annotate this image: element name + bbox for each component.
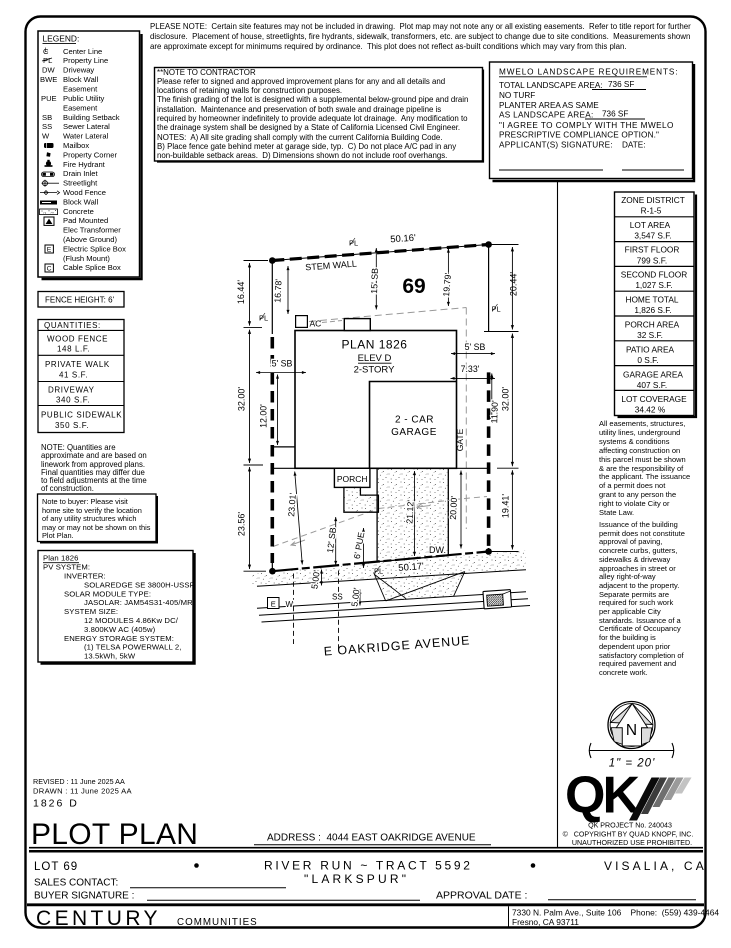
svg-text:"I AGREE TO COMPLY WITH THE MW: "I AGREE TO COMPLY WITH THE MWELO (499, 121, 674, 130)
svg-text:Block Wall: Block Wall (63, 197, 98, 206)
svg-text:PV SYSTEM:: PV SYSTEM: (43, 563, 90, 572)
svg-text:QUANTITIES:: QUANTITIES: (44, 321, 101, 330)
svg-text:ZONE DISTRICT: ZONE DISTRICT (621, 195, 685, 205)
svg-text:19.41': 19.41' (501, 494, 511, 519)
svg-text:PORCH AREA: PORCH AREA (625, 320, 680, 330)
svg-text:R-1-5: R-1-5 (641, 206, 662, 216)
svg-text:21.12': 21.12' (404, 499, 415, 524)
svg-text:NO TURF: NO TURF (499, 91, 535, 100)
svg-text:20.44': 20.44' (509, 272, 519, 297)
svg-text:Elec Transformer: Elec Transformer (63, 226, 121, 235)
svg-text:CENTURY: CENTURY (36, 907, 161, 930)
svg-text:32.00': 32.00' (501, 387, 511, 412)
svg-text:UNAUTHORIZED USE PROHIBITED.: UNAUTHORIZED USE PROHIBITED. (572, 839, 692, 847)
svg-text:"LARKSPUR": "LARKSPUR" (304, 872, 409, 886)
svg-text:MWELO LANDSCAPE REQUIREMENTS:: MWELO LANDSCAPE REQUIREMENTS: (499, 68, 678, 77)
svg-text:0 S.F.: 0 S.F. (637, 355, 658, 365)
svg-text:E OAKRIDGE AVENUE: E OAKRIDGE AVENUE (323, 633, 471, 658)
svg-text:5' SB: 5' SB (465, 342, 486, 352)
svg-text:GARAGE: GARAGE (391, 427, 437, 438)
svg-text:Plan 1826: Plan 1826 (43, 554, 79, 563)
svg-text:PATIO AREA: PATIO AREA (626, 345, 675, 355)
svg-text:23.01': 23.01' (286, 492, 298, 517)
svg-text:QK PROJECT No. 240043: QK PROJECT No. 240043 (588, 822, 672, 830)
svg-text:Easement: Easement (63, 84, 98, 93)
svg-text:LOT AREA: LOT AREA (630, 220, 671, 230)
svg-text:E: E (47, 247, 52, 254)
svg-text:1826 D: 1826 D (33, 798, 79, 810)
svg-text:FENCE HEIGHT: 6': FENCE HEIGHT: 6' (45, 296, 115, 305)
svg-text:Concrete: Concrete (63, 207, 94, 216)
svg-text:5' SB: 5' SB (272, 359, 293, 369)
svg-text:20.00': 20.00' (448, 495, 459, 520)
svg-text:LOT COVERAGE: LOT COVERAGE (621, 394, 687, 404)
svg-text:PLOT PLAN: PLOT PLAN (31, 818, 198, 851)
svg-text:1,826 S.F.: 1,826 S.F. (634, 305, 671, 315)
svg-text:COMMUNITIES: COMMUNITIES (177, 917, 258, 928)
svg-text:N: N (626, 722, 637, 739)
svg-text:16.44': 16.44' (236, 280, 246, 305)
svg-text:BWE: BWE (40, 75, 57, 84)
svg-text:69: 69 (402, 275, 425, 298)
svg-text:DATE:: DATE: (622, 141, 646, 150)
svg-text:Electric Splice Box: Electric Splice Box (63, 244, 126, 253)
svg-text:Cable Splice Box: Cable Splice Box (63, 263, 121, 272)
svg-text:DW: DW (42, 66, 55, 75)
svg-text:APPLICANT(S) SIGNATURE:: APPLICANT(S) SIGNATURE: (499, 141, 613, 150)
svg-text:W: W (42, 132, 50, 141)
svg-text:GARAGE AREA: GARAGE AREA (623, 370, 683, 380)
svg-text:Public Utility: Public Utility (63, 94, 105, 103)
svg-text:(1) TELSA POWERWALL 2,: (1) TELSA POWERWALL 2, (84, 643, 181, 652)
svg-text:Drain Inlet: Drain Inlet (63, 169, 98, 178)
svg-text:DRAWN : 11 June 2025 AA: DRAWN : 11 June 2025 AA (33, 787, 133, 796)
svg-text:DRIVEWAY: DRIVEWAY (48, 386, 95, 395)
svg-text:E: E (271, 599, 276, 608)
svg-text:HOME TOTAL: HOME TOTAL (625, 295, 678, 305)
svg-text:(Above Ground): (Above Ground) (63, 235, 117, 244)
svg-text:SYSTEM SIZE:: SYSTEM SIZE: (64, 607, 118, 616)
svg-text:Fire Hydrant: Fire Hydrant (63, 160, 106, 169)
svg-text:ADDRESS : 4044 EAST OAKRIDGE: ADDRESS : 4044 EAST OAKRIDGE AVENUE (267, 833, 476, 844)
svg-text:Property Line: Property Line (63, 56, 108, 65)
svg-text:Block Wall: Block Wall (63, 75, 98, 84)
svg-text:W: W (286, 600, 294, 609)
svg-text:736 SF: 736 SF (602, 110, 628, 119)
svg-text:12 MODULES 4.86Kw DC/: 12 MODULES 4.86Kw DC/ (84, 616, 179, 625)
svg-text:5.00': 5.00' (309, 569, 322, 589)
svg-text:PRESCRIPTIVE COMPLIANCE OPTION: PRESCRIPTIVE COMPLIANCE OPTION." (499, 131, 659, 140)
svg-text:Streetlight: Streetlight (63, 179, 98, 188)
svg-text:Q: Q (565, 767, 605, 825)
svg-text:50.17': 50.17' (398, 561, 425, 574)
svg-text:736 SF: 736 SF (608, 80, 634, 89)
svg-text:32 S.F.: 32 S.F. (637, 330, 663, 340)
svg-text:Water Lateral: Water Lateral (63, 132, 109, 141)
svg-text:FIRST FLOOR: FIRST FLOOR (625, 245, 680, 255)
svg-text:1,027 S.F.: 1,027 S.F. (635, 280, 672, 290)
svg-text:13.5kWh, 5kW: 13.5kWh, 5kW (84, 652, 136, 661)
svg-text:PL: PL (43, 56, 52, 65)
svg-text:INVERTER:: INVERTER: (64, 572, 106, 581)
svg-text:Fresno, CA 93711: Fresno, CA 93711 (512, 917, 579, 927)
svg-text:16.78': 16.78' (272, 278, 283, 303)
svg-text:LOT 69: LOT 69 (34, 861, 78, 873)
svg-text:Sewer Lateral: Sewer Lateral (63, 122, 110, 131)
svg-text:Wood Fence: Wood Fence (63, 188, 106, 197)
svg-text:350 S.F.: 350 S.F. (55, 421, 89, 430)
svg-text:SS: SS (332, 593, 343, 602)
svg-text:TOTAL LANDSCAPE AREA:: TOTAL LANDSCAPE AREA: (499, 81, 603, 90)
svg-text:SALES CONTACT:: SALES CONTACT: (34, 878, 118, 889)
svg-text:Center Line: Center Line (63, 47, 102, 56)
svg-text:2-STORY: 2-STORY (354, 365, 395, 376)
svg-text:C: C (47, 266, 52, 273)
svg-text:12.00': 12.00' (259, 404, 269, 428)
svg-text:(Flush Mount): (Flush Mount) (63, 254, 110, 263)
svg-text:SOLAR MODULE TYPE:: SOLAR MODULE TYPE: (64, 589, 151, 598)
svg-text:34.42 %: 34.42 % (635, 405, 666, 415)
svg-text:Driveway: Driveway (63, 66, 94, 75)
svg-text:15' SB: 15' SB (369, 268, 380, 294)
svg-text:799 S.F.: 799 S.F. (637, 256, 667, 266)
svg-text:© COPYRIGHT BY QUAD KNOPF, I: © COPYRIGHT BY QUAD KNOPF, INC. (563, 831, 694, 839)
svg-text:JASOLAR: JAM54S31-405/MR: JASOLAR: JAM54S31-405/MR (84, 598, 193, 607)
svg-text:ENERGY STORAGE SYSTEM:: ENERGY STORAGE SYSTEM: (64, 634, 174, 643)
svg-text:11.90': 11.90' (489, 400, 500, 424)
svg-text:148 L.F.: 148 L.F. (57, 345, 90, 354)
svg-text:SS: SS (42, 122, 52, 131)
svg-text:PLANTER AREA AS SAME: PLANTER AREA AS SAME (499, 101, 599, 110)
svg-text:Property Corner: Property Corner (63, 150, 117, 159)
svg-text:PUBLIC SIDEWALK: PUBLIC SIDEWALK (41, 411, 122, 420)
svg-text:2 - CAR: 2 - CAR (395, 415, 434, 426)
svg-text:PORCH: PORCH (337, 474, 368, 484)
svg-text:SOLAREDGE SE 3800H-USSR: SOLAREDGE SE 3800H-USSR (84, 580, 196, 589)
svg-text:STEM WALL: STEM WALL (305, 259, 357, 273)
svg-text:Pad Mounted: Pad Mounted (63, 216, 108, 225)
svg-text:Easement: Easement (63, 103, 98, 112)
svg-text:AC: AC (310, 319, 322, 329)
svg-text:32.00': 32.00' (237, 387, 247, 412)
svg-text:REVISED : 11 June 2025 AA: REVISED : 11 June 2025 AA (33, 777, 125, 786)
svg-text:AS LANDSCAPE AREA:: AS LANDSCAPE AREA: (499, 111, 594, 120)
svg-text:RIVER RUN ~ TRACT 5592: RIVER RUN ~ TRACT 5592 (264, 859, 473, 873)
svg-text:3,547 S.F.: 3,547 S.F. (634, 231, 671, 241)
svg-text:41 S.F.: 41 S.F. (59, 371, 88, 380)
svg-text:19.79': 19.79' (441, 272, 453, 297)
svg-text:BUYER SIGNATURE :: BUYER SIGNATURE : (34, 891, 134, 902)
svg-text:340 S.F.: 340 S.F. (56, 396, 90, 405)
svg-text:APPROVAL DATE :: APPROVAL DATE : (436, 890, 527, 902)
svg-text:LEGEND:: LEGEND: (43, 34, 80, 44)
svg-text:PRIVATE WALK: PRIVATE WALK (45, 360, 110, 369)
svg-text:PUE: PUE (41, 94, 57, 103)
svg-text:DW.: DW. (429, 545, 446, 555)
svg-text:SB: SB (42, 113, 52, 122)
svg-text:7.33': 7.33' (461, 364, 480, 374)
svg-text:WOOD FENCE: WOOD FENCE (47, 335, 108, 344)
svg-text:ELEV D: ELEV D (358, 353, 392, 364)
svg-text:407 S.F.: 407 S.F. (637, 380, 667, 390)
svg-text:23.56': 23.56' (237, 512, 247, 537)
svg-text:SECOND FLOOR: SECOND FLOOR (621, 270, 687, 280)
svg-text:3.800KW AC (405w): 3.800KW AC (405w) (84, 625, 156, 634)
svg-text:6' PUE: 6' PUE (352, 531, 367, 560)
svg-text:VISALIA, CA: VISALIA, CA (604, 859, 707, 873)
svg-text:50.16': 50.16' (390, 233, 416, 246)
svg-text:PLAN 1826: PLAN 1826 (342, 338, 408, 352)
svg-text:Building Setback: Building Setback (63, 113, 120, 122)
svg-text:Mailbox: Mailbox (63, 141, 89, 150)
svg-text:GATE: GATE (455, 428, 465, 451)
